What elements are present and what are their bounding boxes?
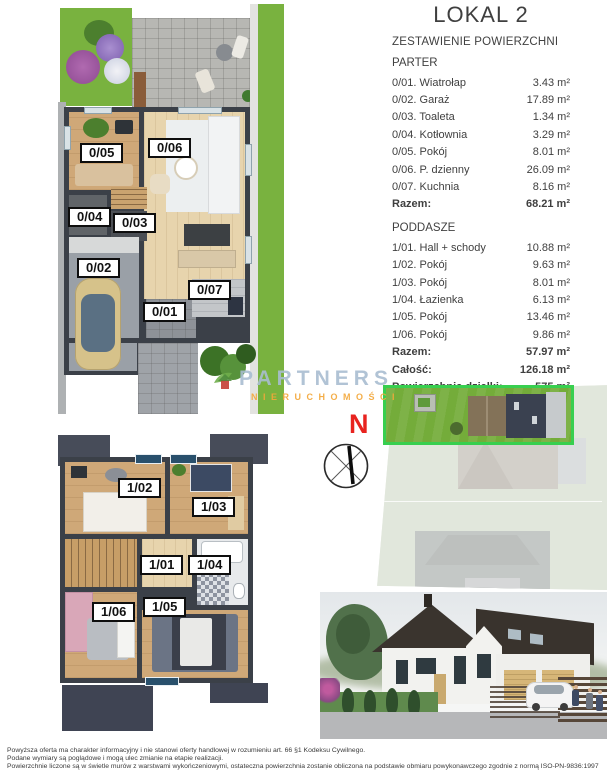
total-value: 68.21 m² bbox=[526, 198, 570, 210]
area-row: 0/02. Garaż17.89 m² bbox=[392, 91, 570, 108]
window bbox=[145, 677, 179, 686]
room-area: 9.63 m² bbox=[533, 259, 570, 271]
attic-floor-plan: 1/02 1/03 1/01 1/04 1/06 1/05 bbox=[55, 432, 280, 734]
tree-large bbox=[326, 604, 388, 680]
room-label-0-02: 0/02 bbox=[77, 258, 120, 278]
plot-house-roof-brown bbox=[468, 396, 508, 436]
toilet bbox=[233, 583, 245, 599]
house-render-photo bbox=[320, 592, 607, 739]
sofa bbox=[75, 164, 133, 186]
plot-house-roof-dark bbox=[506, 394, 546, 438]
patio-bench bbox=[134, 72, 146, 108]
parter-total-row: Razem:68.21 m² bbox=[392, 196, 570, 213]
stairs bbox=[111, 187, 147, 209]
stairs bbox=[65, 539, 137, 587]
room-name: 0/02. Garaż bbox=[392, 94, 449, 106]
partners-logo-icon bbox=[212, 369, 238, 393]
room-name: 0/04. Kotłownia bbox=[392, 129, 467, 141]
window bbox=[416, 658, 436, 674]
sofa-white bbox=[208, 116, 240, 214]
room-name: 0/06. P. dzienny bbox=[392, 164, 469, 176]
room-area: 10.88 m² bbox=[527, 242, 570, 254]
roof-window bbox=[530, 633, 543, 645]
garden-grass bbox=[60, 8, 132, 106]
page-title: LOKAL 2 bbox=[392, 2, 570, 28]
summary-subtitle: ZESTAWIENIE POWIERZCHNI bbox=[392, 36, 570, 48]
area-row: 0/01. Wiatrołap3.43 m² bbox=[392, 74, 570, 91]
room-1-02-floor bbox=[65, 462, 165, 534]
plant bbox=[83, 118, 109, 138]
room-area: 1.34 m² bbox=[533, 111, 570, 123]
area-row: 1/04. Łazienka6.13 m² bbox=[392, 291, 570, 308]
armchair bbox=[150, 174, 170, 194]
window bbox=[64, 126, 71, 150]
plot-tree bbox=[450, 422, 463, 435]
area-row: 0/07. Kuchnia8.16 m² bbox=[392, 178, 570, 195]
window bbox=[396, 660, 408, 684]
room-area: 9.86 m² bbox=[533, 329, 570, 341]
area-row: 1/01. Hall + schody10.88 m² bbox=[392, 239, 570, 256]
room-name: 1/04. Łazienka bbox=[392, 294, 464, 306]
plant bbox=[172, 464, 186, 476]
desk bbox=[71, 466, 87, 478]
car bbox=[75, 278, 121, 370]
room-label-1-05: 1/05 bbox=[143, 597, 186, 617]
total-value: 57.97 m² bbox=[526, 346, 570, 358]
room-area: 26.09 m² bbox=[527, 164, 570, 176]
window bbox=[245, 236, 252, 264]
person bbox=[596, 695, 603, 711]
conifer bbox=[386, 688, 398, 714]
bed-navy bbox=[190, 464, 232, 492]
bed-white bbox=[83, 492, 147, 532]
room-1-05-floor bbox=[142, 610, 248, 678]
highlighted-plot bbox=[383, 385, 574, 445]
area-summary: LOKAL 2 ZESTAWIENIE POWIERZCHNI PARTER 0… bbox=[392, 2, 570, 396]
room-area: 8.16 m² bbox=[533, 181, 570, 193]
area-row: 0/05. Pokój8.01 m² bbox=[392, 144, 570, 161]
room-label-1-01: 1/01 bbox=[140, 555, 183, 575]
patio-table bbox=[216, 44, 233, 61]
bed-frame bbox=[172, 614, 226, 670]
room-name: 1/01. Hall + schody bbox=[392, 242, 486, 254]
roof-plane bbox=[62, 685, 153, 731]
room-area: 17.89 m² bbox=[527, 94, 570, 106]
offer-sheet: 0/05 0/06 0/04 0/03 0/02 0/07 0/01 LOKAL… bbox=[0, 0, 607, 774]
disclaimer-line: Powyższa oferta ma charakter informacyjn… bbox=[7, 747, 603, 755]
car-glass bbox=[81, 294, 115, 352]
plot-stone-patio bbox=[546, 392, 566, 438]
room-area: 8.01 m² bbox=[533, 277, 570, 289]
total-label: Całość: bbox=[392, 364, 432, 376]
disclaimer-line: Powierzchnie liczone są w świetle murów … bbox=[7, 763, 603, 771]
area-row: 0/04. Kotłownia3.29 m² bbox=[392, 126, 570, 143]
room-name: 0/03. Toaleta bbox=[392, 111, 455, 123]
roof-plane bbox=[210, 683, 268, 703]
patio-door bbox=[178, 107, 222, 114]
room-area: 8.01 m² bbox=[533, 146, 570, 158]
disclaimer: Powyższa oferta ma charakter informacyjn… bbox=[7, 747, 603, 770]
desk-white bbox=[117, 620, 135, 658]
utility-counter bbox=[69, 237, 139, 255]
room-name: 0/07. Kuchnia bbox=[392, 181, 459, 193]
conifer bbox=[342, 688, 354, 714]
total-label: Razem: bbox=[392, 346, 431, 358]
room-label-0-03: 0/03 bbox=[113, 213, 156, 233]
desk-chair bbox=[115, 120, 133, 134]
area-row: 0/03. Toaleta1.34 m² bbox=[392, 109, 570, 126]
area-row: 0/06. P. dzienny26.09 m² bbox=[392, 161, 570, 178]
person bbox=[572, 690, 579, 706]
area-row: 1/02. Pokój9.63 m² bbox=[392, 257, 570, 274]
room-label-0-01: 0/01 bbox=[143, 302, 186, 322]
watermark-subtitle: NIERUCHOMOŚCI bbox=[251, 392, 400, 402]
room-label-1-02: 1/02 bbox=[118, 478, 161, 498]
flower-white bbox=[104, 58, 130, 84]
room-name: 0/05. Pokój bbox=[392, 146, 447, 158]
total-label: Razem: bbox=[392, 198, 431, 210]
kitchen-counter bbox=[178, 250, 236, 268]
coffee-table bbox=[174, 156, 198, 180]
car-white bbox=[526, 682, 574, 708]
grand-total-row: Całość:126.18 m² bbox=[392, 361, 570, 378]
room-name: 1/03. Pokój bbox=[392, 277, 447, 289]
room-label-0-04: 0/04 bbox=[68, 207, 111, 227]
patio-lounger bbox=[231, 35, 249, 60]
patio bbox=[132, 18, 254, 108]
room-name: 1/05. Pokój bbox=[392, 311, 447, 323]
window bbox=[454, 656, 466, 684]
patio-lounger bbox=[194, 68, 215, 94]
room-area: 13.46 m² bbox=[527, 311, 570, 323]
total-value: 126.18 m² bbox=[520, 364, 570, 376]
room-label-0-05: 0/05 bbox=[80, 143, 123, 163]
room-name: 0/01. Wiatrołap bbox=[392, 77, 466, 89]
flower-bush-pink bbox=[320, 678, 340, 706]
window bbox=[245, 144, 252, 176]
skylight-window bbox=[170, 454, 197, 464]
north-label: N bbox=[349, 409, 369, 440]
room-area: 3.43 m² bbox=[533, 77, 570, 89]
poddasze-total-row: Razem:57.97 m² bbox=[392, 343, 570, 360]
room-name: 1/02. Pokój bbox=[392, 259, 447, 271]
person bbox=[586, 693, 593, 709]
watermark-brand: PARTNERS bbox=[239, 367, 393, 391]
chimney bbox=[424, 594, 432, 607]
garden-shed bbox=[414, 394, 436, 412]
roof-window bbox=[508, 629, 521, 641]
room-label-1-03: 1/03 bbox=[192, 497, 235, 517]
room-label-0-06: 0/06 bbox=[148, 138, 191, 158]
room-name: 1/06. Pokój bbox=[392, 329, 447, 341]
skylight-window bbox=[135, 454, 162, 464]
room-area: 3.29 m² bbox=[533, 129, 570, 141]
room-label-1-06: 1/06 bbox=[92, 602, 135, 622]
dining-table bbox=[184, 224, 230, 246]
window bbox=[477, 654, 491, 678]
area-row: 1/06. Pokój9.86 m² bbox=[392, 326, 570, 343]
flower-purple bbox=[66, 50, 100, 84]
compass-icon bbox=[322, 441, 372, 491]
section-parter: PARTER bbox=[392, 57, 570, 69]
disclaimer-line: Podane wymiary są poglądowe i mogą ulec … bbox=[7, 755, 603, 763]
room-area: 6.13 m² bbox=[533, 294, 570, 306]
section-poddasze: PODDASZE bbox=[392, 222, 570, 234]
ground-floor-plan: 0/05 0/06 0/04 0/03 0/02 0/07 0/01 bbox=[58, 4, 284, 414]
entry-path bbox=[138, 343, 198, 414]
area-row: 1/05. Pokój13.46 m² bbox=[392, 309, 570, 326]
room-label-1-04: 1/04 bbox=[188, 555, 231, 575]
room-label-0-07: 0/07 bbox=[188, 280, 231, 300]
area-row: 1/03. Pokój8.01 m² bbox=[392, 274, 570, 291]
grass-strip-right bbox=[258, 4, 284, 414]
window bbox=[84, 107, 112, 114]
